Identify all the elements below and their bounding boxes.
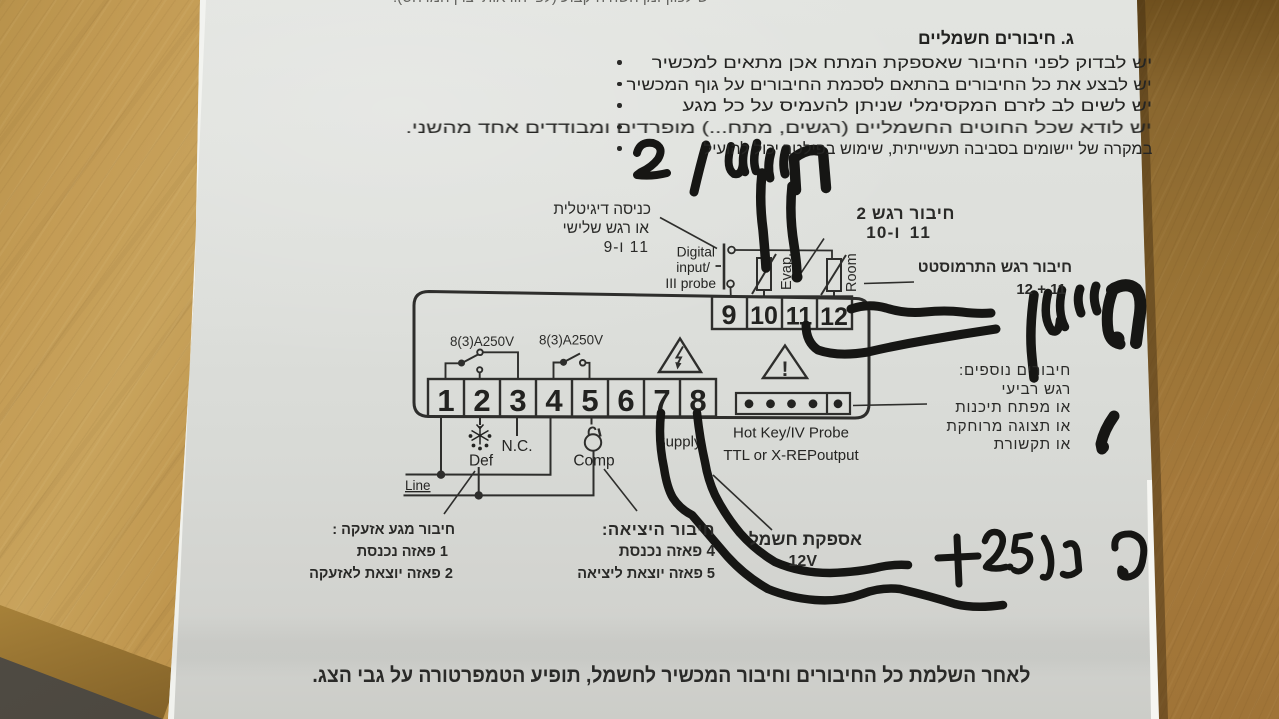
svg-text:4: 4 [545,383,563,418]
svg-text:Digital: Digital [677,245,715,260]
svg-text:6: 6 [617,383,634,418]
svg-text:input/: input/ [676,260,710,275]
svg-text:10: 10 [750,302,778,330]
svg-text:1: 1 [437,383,454,418]
svg-text:5: 5 [581,383,598,418]
svg-text:9: 9 [721,300,736,330]
svg-text:N.C.: N.C. [502,438,533,455]
svg-text:!: ! [782,358,789,381]
svg-text:Comp: Comp [573,453,614,470]
svg-text:8(3)A250V: 8(3)A250V [450,334,514,349]
svg-text:Room: Room [844,253,860,292]
svg-text:Hot Key/IV Probe: Hot Key/IV Probe [733,425,849,442]
svg-text:Line: Line [405,478,431,493]
svg-text:TTL or X-REPoutput: TTL or X-REPoutput [723,447,859,464]
svg-text:3: 3 [509,383,526,418]
svg-text:2: 2 [473,383,490,418]
svg-text:12: 12 [820,303,848,331]
svg-text:8(3)A250V: 8(3)A250V [539,333,603,348]
svg-text:III probe: III probe [665,276,716,291]
svg-text:Def: Def [469,453,494,470]
